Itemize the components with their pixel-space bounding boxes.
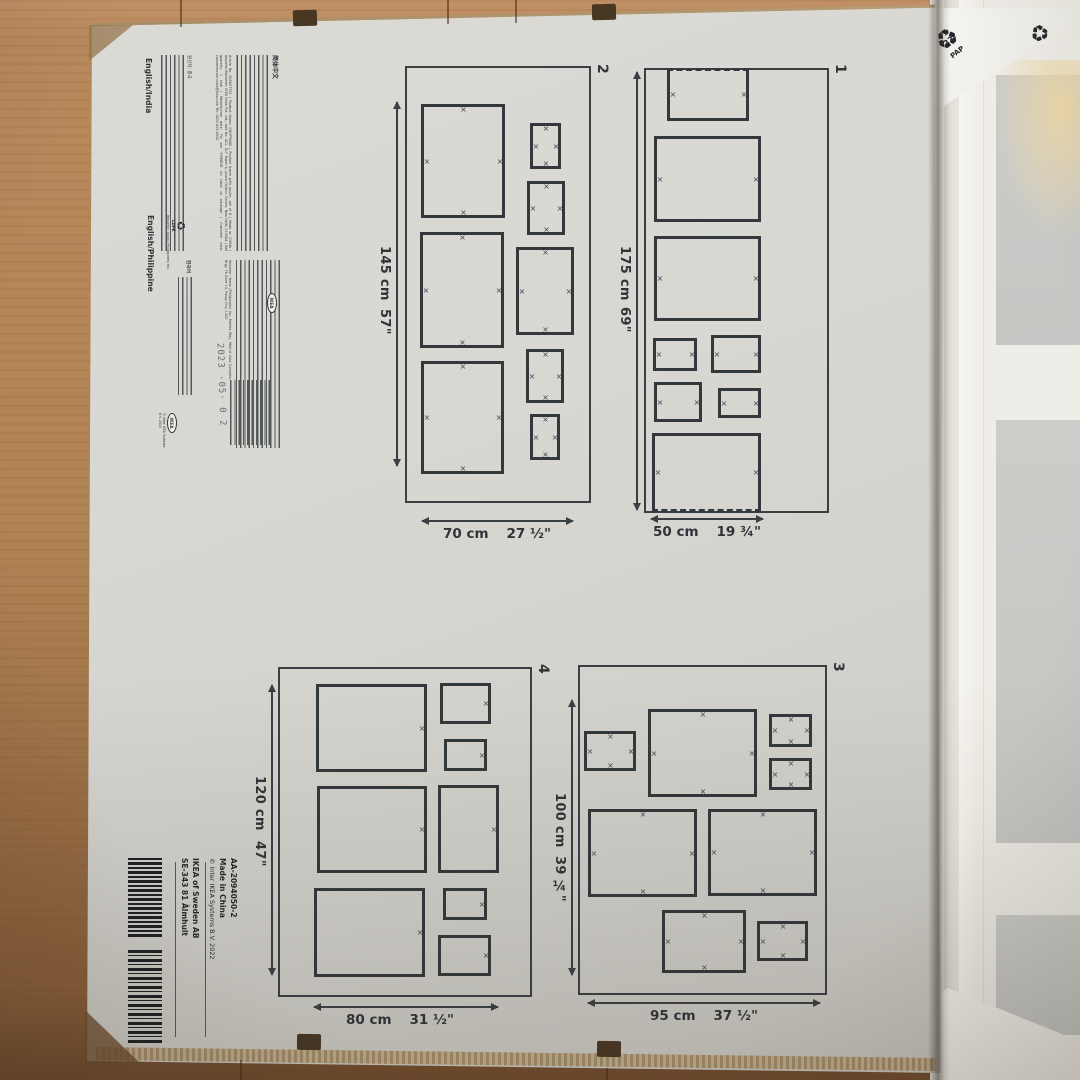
width-label: 70 cm27 ½" <box>387 526 607 542</box>
nail-mark: × <box>419 725 426 733</box>
header-english-india: English/India <box>144 58 153 113</box>
nail-mark: × <box>543 125 550 133</box>
arrowhead-left <box>313 1003 321 1011</box>
nail-mark: × <box>543 226 550 234</box>
nail-mark: × <box>542 326 549 334</box>
ikea-logo: IKEA <box>167 413 177 433</box>
nail-mark: × <box>628 748 635 756</box>
frame-outline <box>648 709 757 797</box>
nail-mark: × <box>491 826 498 834</box>
nail-mark: × <box>753 351 760 359</box>
nail-mark: × <box>533 143 540 151</box>
nail-mark: × <box>587 748 594 756</box>
frame-outline <box>421 361 504 474</box>
frame-molding <box>959 0 984 1080</box>
arrowhead-up <box>393 101 401 109</box>
nail-mark: × <box>701 912 708 920</box>
company-address: SE-343 81 Älmhult <box>180 858 189 939</box>
nail-mark: × <box>753 400 760 408</box>
arrowhead-left <box>421 517 429 525</box>
nail-mark: × <box>689 850 696 858</box>
nail-mark: × <box>689 351 696 359</box>
article-number: AA-2094050-2 <box>229 858 238 959</box>
nail-mark: × <box>607 733 614 741</box>
frame-outline <box>317 786 427 873</box>
nail-mark: × <box>542 451 549 459</box>
ikea-logo: IKEA <box>267 293 277 313</box>
frame-outline <box>316 684 427 772</box>
nail-mark: × <box>772 727 779 735</box>
photo-of-ikea-box: { "info_block": { "zh_header": "简体中文", "… <box>0 0 1080 1080</box>
nail-mark: × <box>800 938 807 946</box>
frame-outline <box>420 232 504 348</box>
info-text-block: 简体中文 Article No. 605607791 | Product Nam… <box>137 55 282 450</box>
nail-mark: × <box>533 434 540 442</box>
nail-mark: × <box>694 399 701 407</box>
korean-label: 한국어 <box>185 260 192 273</box>
arrowhead-right <box>756 515 764 523</box>
height-arrow <box>571 700 573 975</box>
frame-outline <box>708 809 817 896</box>
template-number-1: 1 <box>832 64 848 74</box>
nail-mark: × <box>753 275 760 283</box>
nail-mark: × <box>640 888 647 896</box>
frame-outline <box>588 809 697 897</box>
nail-mark: × <box>543 160 550 168</box>
nail-mark: × <box>780 952 787 960</box>
height-label-inch: 39 ¼" <box>552 856 567 902</box>
width-label-inch: 31 ½" <box>410 1012 455 1028</box>
nail-mark: × <box>479 752 486 760</box>
plastic-wrap-reflection <box>990 60 1080 250</box>
nail-mark: × <box>772 771 779 779</box>
frame-outline <box>654 136 761 222</box>
nail-mark: × <box>542 351 549 359</box>
nail-mark: × <box>424 158 431 166</box>
height-label-inch: 57" <box>377 309 392 335</box>
arrowhead-right <box>491 1003 499 1011</box>
box-flap-notch <box>297 1034 321 1050</box>
height-arrow <box>396 102 398 466</box>
nail-mark: × <box>424 414 431 422</box>
width-arrow <box>422 520 573 522</box>
recycling-icon-arrows-top: ♻ <box>1026 22 1050 44</box>
arrowhead-left <box>587 999 595 1007</box>
nail-mark: × <box>670 91 677 99</box>
barcode <box>128 858 162 938</box>
nail-mark: × <box>780 923 787 931</box>
arrowhead-down <box>568 968 576 976</box>
divider <box>205 862 206 1037</box>
nail-mark: × <box>700 788 707 796</box>
nail-mark: × <box>753 176 760 184</box>
arrowhead-down <box>268 968 276 976</box>
nail-mark: × <box>655 469 662 477</box>
nail-mark: × <box>497 158 504 166</box>
nail-mark: × <box>423 287 430 295</box>
mat-opening-2 <box>996 420 1080 843</box>
floor-plank-seam <box>180 0 182 27</box>
nail-mark: × <box>483 700 490 708</box>
nail-mark: × <box>553 143 560 151</box>
nail-mark: × <box>749 750 756 758</box>
english-philippine-fineprint: Importer: Ikano (Philippines) Inc. Marin… <box>196 260 232 380</box>
nail-mark: × <box>496 414 503 422</box>
nail-mark: × <box>788 716 795 724</box>
nail-mark: × <box>460 106 467 114</box>
nail-mark: × <box>711 849 718 857</box>
frame-outline <box>667 68 749 121</box>
nail-mark: × <box>788 781 795 789</box>
nail-mark: × <box>552 434 559 442</box>
nail-mark: × <box>809 849 816 857</box>
nail-mark: × <box>459 234 466 242</box>
nail-mark: × <box>760 938 767 946</box>
nail-mark: × <box>543 183 550 191</box>
nail-mark: × <box>557 205 564 213</box>
floor-plank-seam <box>606 1068 608 1080</box>
arrowhead-down <box>633 503 641 511</box>
arrowhead-left <box>650 515 658 523</box>
nail-mark: × <box>738 938 745 946</box>
width-arrow <box>588 1002 820 1004</box>
nail-mark: × <box>419 826 426 834</box>
divider <box>175 862 176 1037</box>
nail-mark: × <box>607 762 614 770</box>
barcode-block: AA-2094050-2 Made in China © Inter IKEA … <box>128 858 240 1045</box>
barcode <box>128 950 162 1045</box>
nail-mark: × <box>460 363 467 371</box>
nail-mark: × <box>657 176 664 184</box>
nail-mark: × <box>760 887 767 895</box>
width-label: 95 cm37 ½" <box>594 1008 814 1024</box>
height-label-cm: 100 cm <box>552 793 567 848</box>
nail-mark: × <box>741 91 748 99</box>
nail-mark: × <box>788 760 795 768</box>
nail-mark: × <box>640 811 647 819</box>
copyright-line: © Inter IKEA Systems B.V. 2015 <box>158 413 166 451</box>
box-frame-gap-shadow <box>928 0 950 1080</box>
width-label-inch: 19 ¾" <box>717 524 762 540</box>
nail-mark: × <box>657 275 664 283</box>
height-label-cm: 145 cm <box>377 246 392 301</box>
arrowhead-up <box>633 71 641 79</box>
copyright-2022: © Inter IKEA Systems B.V. 2022 <box>208 858 216 959</box>
white-frame-product <box>930 0 1080 1080</box>
arrowhead-right <box>813 999 821 1007</box>
width-label: 50 cm19 ¾" <box>597 524 817 540</box>
english-india-fineprint: Article No. 605607791 | Product Name: KN… <box>194 55 232 251</box>
zh-header: 简体中文 <box>271 55 280 79</box>
floor-plank-seam <box>515 0 517 23</box>
width-arrow <box>314 1006 498 1008</box>
floor-plank-seam <box>240 1060 242 1080</box>
company-name: IKEA of Sweden AB <box>191 858 200 939</box>
nail-mark: × <box>700 711 707 719</box>
nail-mark: × <box>459 339 466 347</box>
nail-mark: × <box>460 209 467 217</box>
nail-mark: × <box>721 400 728 408</box>
frame-outline <box>652 433 761 512</box>
height-arrow <box>636 72 638 510</box>
nail-mark: × <box>665 938 672 946</box>
nail-mark: × <box>788 738 795 746</box>
nail-mark: × <box>701 964 708 972</box>
nail-mark: × <box>804 771 811 779</box>
arrowhead-up <box>568 699 576 707</box>
box-flap-notch <box>293 10 317 27</box>
nail-mark: × <box>566 288 573 296</box>
width-label-cm: 50 cm <box>653 524 699 540</box>
width-label-inch: 27 ½" <box>507 526 552 542</box>
height-label-cm: 120 cm <box>252 776 267 831</box>
nail-mark: × <box>714 351 721 359</box>
nail-mark: × <box>519 288 526 296</box>
width-label-cm: 70 cm <box>443 526 489 542</box>
frame-outline <box>314 888 425 977</box>
height-arrow <box>271 685 273 975</box>
arrowhead-right <box>566 517 574 525</box>
frame-outline <box>421 104 505 218</box>
height-label-inch: 69" <box>617 307 632 333</box>
nail-mark: × <box>656 351 663 359</box>
nail-mark: × <box>657 399 664 407</box>
made-in-label: Made in China <box>218 858 227 959</box>
template-number-4: 4 <box>535 664 551 674</box>
nail-mark: × <box>542 249 549 257</box>
nail-mark: × <box>542 394 549 402</box>
width-arrow <box>651 518 763 520</box>
floor-plank-seam <box>447 0 449 24</box>
importer-philippines-line: Importer: Ikano (Philippines) Inc. <box>166 215 170 315</box>
width-label-inch: 37 ½" <box>714 1008 759 1024</box>
nail-mark: × <box>483 952 490 960</box>
arrowhead-down <box>393 459 401 467</box>
nail-mark: × <box>542 416 549 424</box>
width-label-cm: 95 cm <box>650 1008 696 1024</box>
frame-outline <box>654 236 761 321</box>
chinese-microprint-3 <box>230 380 270 445</box>
nail-mark: × <box>496 287 503 295</box>
nail-mark: × <box>530 205 537 213</box>
nail-mark: × <box>556 373 563 381</box>
nail-mark: × <box>460 465 467 473</box>
korean-microprint-2 <box>178 277 192 395</box>
box-flap-notch <box>592 4 616 21</box>
box-flap-notch <box>597 1041 621 1057</box>
nail-mark: × <box>417 929 424 937</box>
chinese-microprint <box>234 55 268 251</box>
nail-mark: × <box>753 469 760 477</box>
nail-mark: × <box>651 750 658 758</box>
header-english-philippine: English/Philippine <box>146 215 155 292</box>
nail-mark: × <box>591 850 598 858</box>
height-label-inch: 47" <box>252 841 267 867</box>
width-label: 80 cm31 ½" <box>290 1012 510 1028</box>
recycling-icon-ldpe: ♻ LDPE <box>171 220 186 232</box>
template-number-2: 2 <box>594 64 610 74</box>
nail-mark: × <box>479 901 486 909</box>
template-number-3: 3 <box>830 662 846 672</box>
nail-mark: × <box>760 811 767 819</box>
nail-mark: × <box>529 373 536 381</box>
nail-mark: × <box>804 727 811 735</box>
width-label-cm: 80 cm <box>346 1012 392 1028</box>
height-label-cm: 175 cm <box>617 246 632 301</box>
arrowhead-up <box>268 684 276 692</box>
